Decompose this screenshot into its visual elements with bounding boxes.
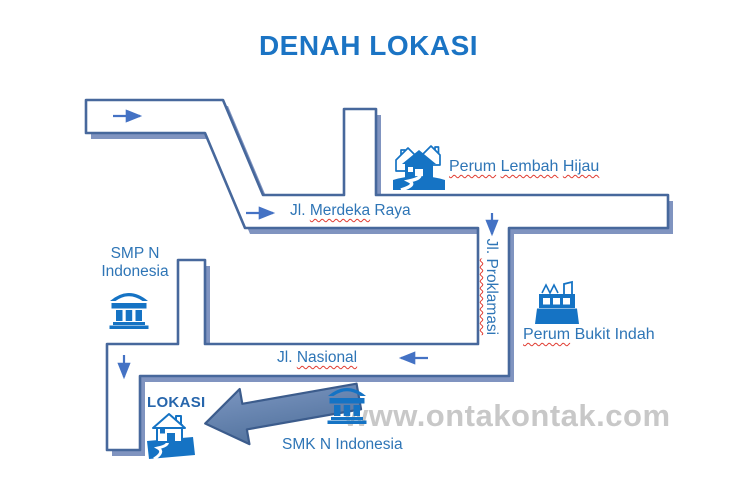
road-label-nasional-prefix: Jl.: [277, 349, 297, 366]
road-label-merdeka-prefix: Jl.: [290, 202, 310, 219]
road-label-merdeka-name: Merdeka: [310, 202, 370, 219]
landmark-smk-n-indonesia: SMK N Indonesia: [282, 436, 403, 454]
landmark-word: Lembah: [501, 158, 559, 175]
road-label-nasional: Jl. Nasional: [277, 349, 357, 367]
landmark-smp-n-indonesia: SMP N Indonesia: [95, 245, 175, 281]
landmark-word: Hijau: [563, 158, 599, 175]
landmark-perum-lembah-hijau: Perum Lembah Hijau: [449, 158, 599, 176]
landmark-label-line2: Indonesia: [95, 263, 175, 281]
road-label-nasional-name: Nasional: [297, 349, 357, 366]
factory-icon: [534, 280, 580, 326]
landmark-label-line1: SMP N: [95, 245, 175, 263]
watermark: www.ontakontak.com: [344, 398, 671, 434]
lokasi-label: LOKASI: [147, 394, 205, 411]
bank-icon: [106, 288, 152, 329]
landmark-word: Perum: [449, 158, 496, 175]
page-title: DENAH LOKASI: [0, 30, 737, 62]
road-label-proklamasi-prefix: Jl.: [483, 239, 500, 259]
landmark-word: Perum: [523, 326, 570, 343]
road-label-proklamasi-name: Proklamasi: [483, 258, 500, 335]
landmark-label: Perum Lembah Hijau: [449, 158, 599, 175]
landmark-perum-bukit-indah: Perum Bukit Indah: [523, 326, 655, 344]
landmark-label: SMK N Indonesia: [282, 436, 403, 453]
road-label-proklamasi: Jl. Proklamasi: [482, 231, 500, 343]
bank-icon: [324, 383, 370, 424]
location-map: DENAH LOKASI Jl. Merdeka Raya Jl. Prokla…: [0, 0, 737, 482]
houses-icon: [391, 138, 447, 192]
landmark-label: Perum Bukit Indah: [523, 326, 655, 343]
road-label-merdeka: Jl. Merdeka Raya: [290, 202, 411, 220]
home-icon: [144, 410, 198, 461]
road-label-merdeka-suffix: Raya: [370, 202, 411, 219]
landmark-word: Bukit Indah: [570, 326, 655, 343]
